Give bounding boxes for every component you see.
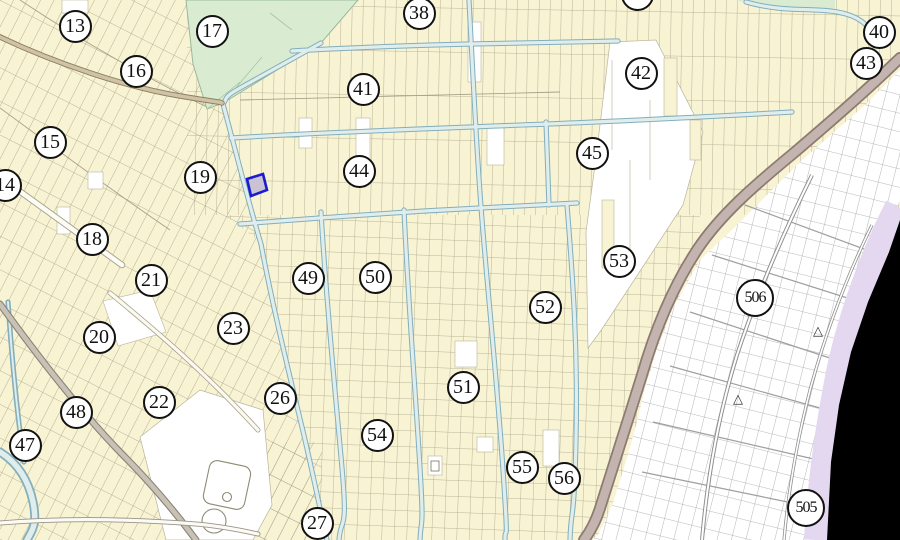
parcel-label-13[interactable]: 13 (59, 10, 92, 43)
parcel-label-layer: 1316171514191821202322264847273839414442… (0, 0, 900, 540)
parcel-label-21[interactable]: 21 (135, 264, 168, 297)
parcel-label-17[interactable]: 17 (196, 15, 229, 48)
parcel-label-49[interactable]: 49 (292, 262, 325, 295)
parcel-label-41[interactable]: 41 (347, 73, 380, 106)
parcel-label-55[interactable]: 55 (506, 451, 539, 484)
survey-triangle-marker: △ (731, 392, 745, 408)
parcel-label-50[interactable]: 50 (359, 261, 392, 294)
parcel-label-52[interactable]: 52 (529, 291, 562, 324)
parcel-label-14[interactable]: 14 (0, 169, 22, 202)
parcel-label-18[interactable]: 18 (76, 223, 109, 256)
parcel-label-43[interactable]: 43 (850, 47, 883, 80)
parcel-label-56[interactable]: 56 (548, 462, 581, 495)
cadastral-map-canvas[interactable]: 1316171514191821202322264847273839414442… (0, 0, 900, 540)
parcel-label-505[interactable]: 505 (787, 489, 825, 527)
parcel-label-15[interactable]: 15 (34, 126, 67, 159)
parcel-label-47[interactable]: 47 (9, 429, 42, 462)
parcel-label-53[interactable]: 53 (603, 245, 636, 278)
parcel-label-39[interactable]: 39 (621, 0, 654, 11)
parcel-label-23[interactable]: 23 (217, 312, 250, 345)
parcel-label-26[interactable]: 26 (264, 382, 297, 415)
parcel-label-27[interactable]: 27 (301, 507, 334, 540)
parcel-label-51[interactable]: 51 (447, 371, 480, 404)
survey-triangle-marker: △ (811, 324, 825, 340)
parcel-label-20[interactable]: 20 (83, 321, 116, 354)
parcel-label-54[interactable]: 54 (361, 419, 394, 452)
parcel-label-45[interactable]: 45 (576, 137, 609, 170)
parcel-label-22[interactable]: 22 (143, 386, 176, 419)
parcel-label-42[interactable]: 42 (625, 57, 658, 90)
parcel-label-44[interactable]: 44 (343, 155, 376, 188)
parcel-label-19[interactable]: 19 (184, 161, 217, 194)
parcel-label-38[interactable]: 38 (403, 0, 436, 30)
parcel-label-40[interactable]: 40 (863, 16, 896, 49)
parcel-label-48[interactable]: 48 (60, 396, 93, 429)
parcel-label-506[interactable]: 506 (736, 279, 774, 317)
parcel-label-16[interactable]: 16 (120, 55, 153, 88)
